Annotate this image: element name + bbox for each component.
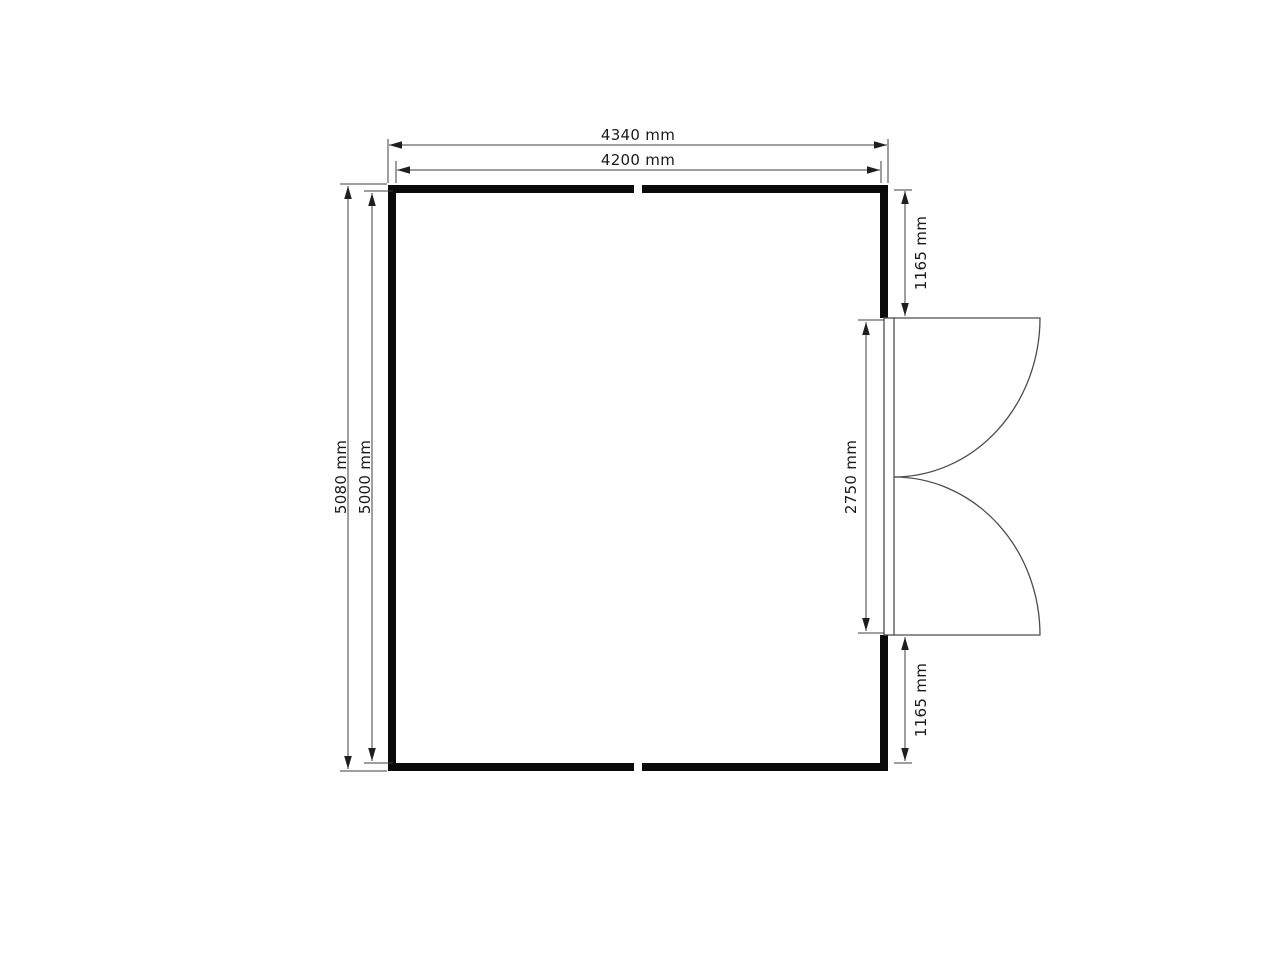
dim-door-opening: 2750 mm xyxy=(842,320,884,633)
door-leaves-closed xyxy=(884,318,894,635)
wall-bottom-right-segment xyxy=(642,763,888,771)
dim-door-offset-top: 1165 mm xyxy=(894,190,930,316)
dim-inner-height-label: 5000 mm xyxy=(356,440,374,514)
walls xyxy=(388,185,888,771)
dim-inner-height: 5000 mm xyxy=(356,191,393,763)
dim-door-offset-bottom-label: 1165 mm xyxy=(912,663,930,737)
dimensions: 4340 mm 4200 mm 5080 mm 5000 xyxy=(332,126,930,771)
floor-plan-drawing: 4340 mm 4200 mm 5080 mm 5000 xyxy=(0,0,1280,960)
door-swing-bottom xyxy=(894,477,1040,635)
dim-door-offset-bottom: 1165 mm xyxy=(894,637,930,763)
dim-inner-width: 4200 mm xyxy=(396,151,881,183)
door-swing-top xyxy=(894,318,1040,477)
dim-outer-height-label: 5080 mm xyxy=(332,440,350,514)
dim-door-offset-top-label: 1165 mm xyxy=(912,216,930,290)
floor-plan-canvas: 4340 mm 4200 mm 5080 mm 5000 xyxy=(0,0,1280,960)
dim-door-opening-label: 2750 mm xyxy=(842,440,860,514)
wall-bottom-left-segment xyxy=(388,763,634,771)
wall-right-lower xyxy=(880,635,888,771)
wall-left xyxy=(388,185,396,771)
dim-outer-width-label: 4340 mm xyxy=(601,126,675,144)
double-door xyxy=(884,318,1040,635)
wall-top-left-segment xyxy=(388,185,634,193)
wall-top-right-segment xyxy=(642,185,888,193)
wall-right-upper xyxy=(880,185,888,318)
dim-inner-width-label: 4200 mm xyxy=(601,151,675,169)
